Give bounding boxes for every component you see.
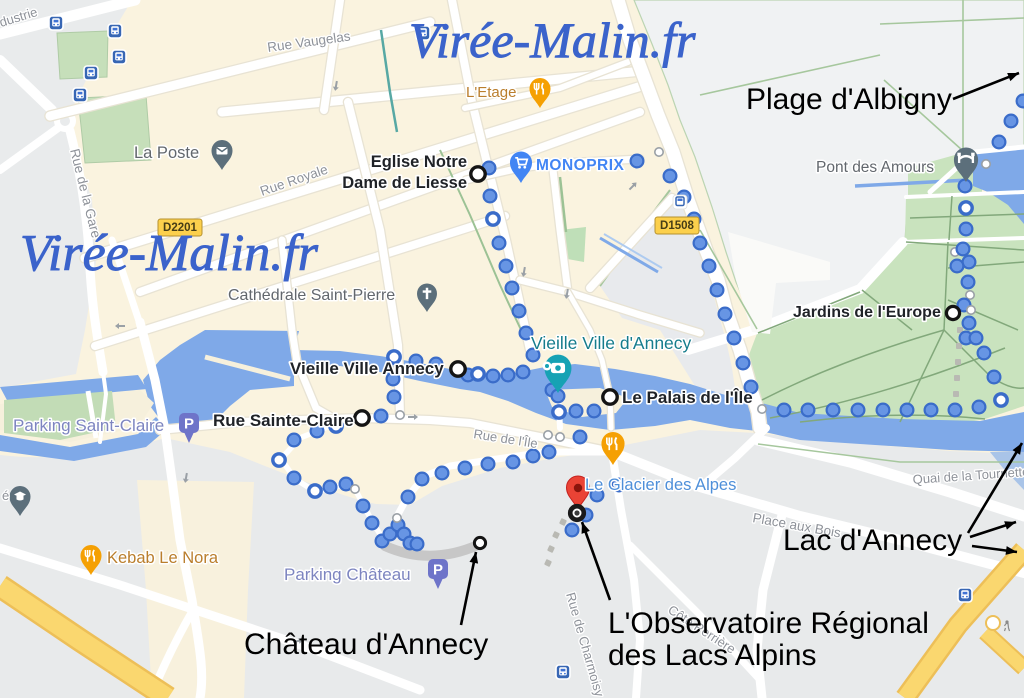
svg-text:Le Palais de l'Île: Le Palais de l'Île [622, 388, 753, 407]
svg-text:Rue Sainte-Claire: Rue Sainte-Claire [213, 411, 354, 430]
svg-text:Virée-Malin.fr: Virée-Malin.fr [20, 225, 319, 282]
svg-text:Cathédrale Saint-Pierre: Cathédrale Saint-Pierre [228, 287, 395, 304]
svg-text:Le Glacier des Alpes: Le Glacier des Alpes [585, 476, 736, 494]
svg-text:Dame de Liesse: Dame de Liesse [342, 174, 467, 192]
svg-text:Vieille Ville d'Annecy: Vieille Ville d'Annecy [531, 333, 692, 353]
svg-text:Plage d'Albigny: Plage d'Albigny [746, 83, 952, 116]
svg-text:D1508: D1508 [660, 220, 694, 232]
svg-text:Eglise Notre: Eglise Notre [371, 153, 467, 171]
svg-text:des Lacs Alpins: des Lacs Alpins [608, 639, 816, 672]
svg-text:Virée-Malin.fr: Virée-Malin.fr [409, 12, 696, 68]
svg-text:L'Observatoire Régional: L'Observatoire Régional [608, 607, 929, 640]
svg-text:Parking Château: Parking Château [284, 565, 411, 584]
svg-text:Vieille Ville Annecy: Vieille Ville Annecy [290, 359, 444, 378]
svg-text:Pont des Amours: Pont des Amours [816, 159, 934, 176]
svg-text:L'Etage: L'Etage [466, 84, 516, 101]
svg-text:Kebab Le Nora: Kebab Le Nora [107, 549, 219, 567]
svg-text:Lac d'Annecy: Lac d'Annecy [783, 524, 962, 557]
svg-text:é: é [2, 488, 9, 503]
svg-text:P: P [184, 416, 194, 433]
svg-text:La Poste: La Poste [134, 144, 199, 162]
svg-text:Château d'Annecy: Château d'Annecy [244, 628, 488, 661]
svg-text:MONOPRIX: MONOPRIX [536, 157, 625, 174]
svg-text:Parking Saint-Claire: Parking Saint-Claire [13, 416, 164, 435]
svg-text:P: P [433, 562, 443, 579]
svg-text:Jardins de l'Europe: Jardins de l'Europe [793, 304, 941, 321]
